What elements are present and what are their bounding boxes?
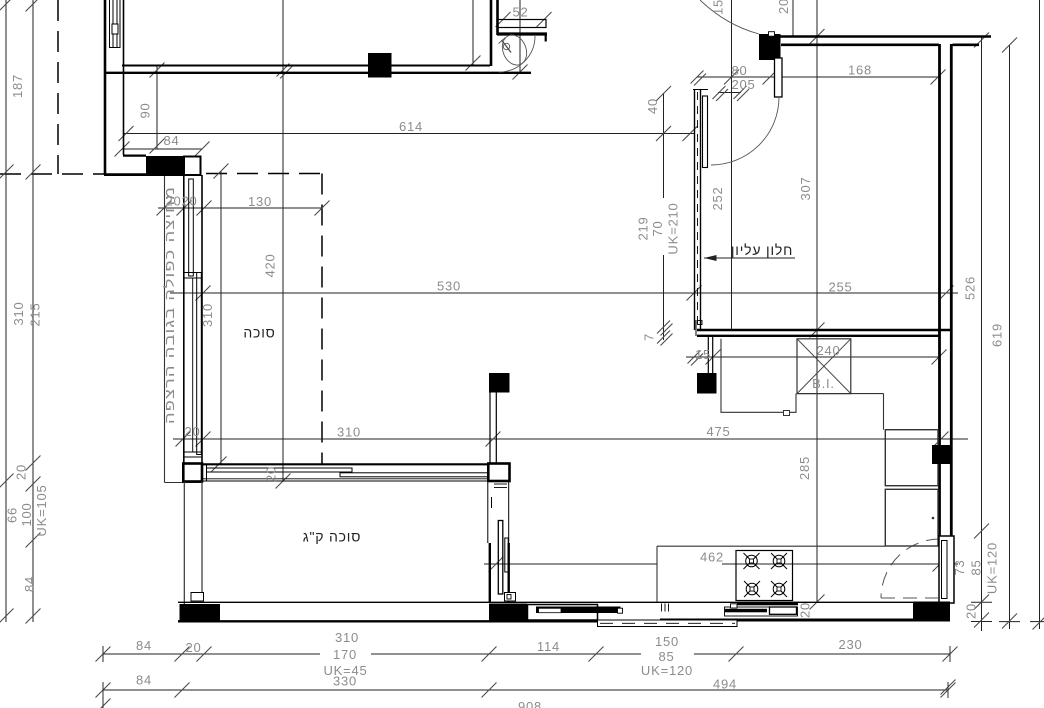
- svg-text:908: 908: [518, 699, 542, 708]
- svg-text:20: 20: [184, 424, 200, 439]
- svg-text:15: 15: [695, 347, 711, 362]
- svg-text:90: 90: [138, 102, 153, 118]
- svg-text:B.I.: B.I.: [812, 376, 835, 391]
- svg-text:20: 20: [776, 0, 791, 14]
- svg-text:285: 285: [797, 456, 812, 480]
- svg-text:סוכה: סוכה: [243, 325, 275, 341]
- svg-text:84: 84: [22, 576, 37, 592]
- svg-text:חלון עליון: חלון עליון: [731, 242, 793, 258]
- svg-text:494: 494: [713, 677, 737, 692]
- svg-text:219: 219: [636, 216, 651, 240]
- svg-text:84: 84: [136, 673, 152, 688]
- svg-text:20: 20: [185, 640, 201, 655]
- svg-text:UK=120: UK=120: [641, 663, 693, 678]
- svg-text:85: 85: [969, 559, 984, 575]
- svg-text:240: 240: [816, 343, 840, 358]
- svg-text:20: 20: [964, 603, 979, 619]
- svg-text:מחיצה כפולה בגובה הרצפה: מחיצה כפולה בגובה הרצפה: [162, 186, 177, 424]
- svg-text:20: 20: [14, 464, 29, 480]
- svg-text:255: 255: [828, 280, 852, 295]
- svg-text:420: 420: [263, 253, 278, 277]
- svg-text:114: 114: [537, 639, 560, 654]
- svg-text:526: 526: [963, 276, 978, 300]
- svg-text:614: 614: [399, 119, 423, 134]
- svg-text:462: 462: [700, 550, 724, 565]
- svg-text:84: 84: [136, 638, 152, 653]
- svg-text:215: 215: [28, 302, 43, 326]
- svg-text:70: 70: [650, 220, 665, 236]
- svg-text:52: 52: [512, 5, 528, 20]
- svg-text:252: 252: [710, 186, 725, 210]
- svg-text:330: 330: [333, 674, 357, 689]
- svg-text:20: 20: [165, 194, 181, 209]
- svg-text:20: 20: [798, 602, 813, 618]
- svg-text:85: 85: [658, 649, 674, 664]
- svg-text:310: 310: [335, 630, 359, 645]
- svg-text:170: 170: [333, 647, 357, 662]
- svg-text:187: 187: [10, 74, 25, 98]
- svg-text:73: 73: [952, 559, 967, 575]
- svg-text:UK=120: UK=120: [985, 542, 1000, 594]
- svg-text:20: 20: [264, 466, 279, 482]
- svg-text:619: 619: [990, 323, 1005, 347]
- svg-text:230: 230: [838, 637, 862, 652]
- svg-text:168: 168: [848, 63, 872, 78]
- svg-text:UK=210: UK=210: [666, 202, 681, 254]
- svg-text:530: 530: [437, 279, 461, 294]
- svg-text:66: 66: [5, 507, 20, 523]
- svg-text:UK=105: UK=105: [34, 484, 49, 536]
- svg-text:סוכה ק"ג: סוכה ק"ג: [303, 529, 361, 545]
- svg-text:205: 205: [731, 77, 755, 92]
- svg-text:100: 100: [19, 502, 34, 526]
- svg-text:475: 475: [706, 424, 730, 439]
- svg-text:15: 15: [711, 0, 726, 15]
- svg-text:80: 80: [731, 63, 747, 78]
- svg-text:40: 40: [645, 98, 660, 114]
- svg-text:7: 7: [642, 333, 657, 341]
- svg-text:310: 310: [200, 303, 215, 327]
- svg-text:310: 310: [11, 301, 26, 325]
- svg-text:20: 20: [181, 194, 197, 209]
- svg-text:307: 307: [798, 176, 813, 200]
- svg-text:150: 150: [655, 634, 679, 649]
- svg-text:84: 84: [163, 133, 179, 148]
- svg-text:130: 130: [248, 194, 272, 209]
- svg-text:310: 310: [337, 425, 361, 440]
